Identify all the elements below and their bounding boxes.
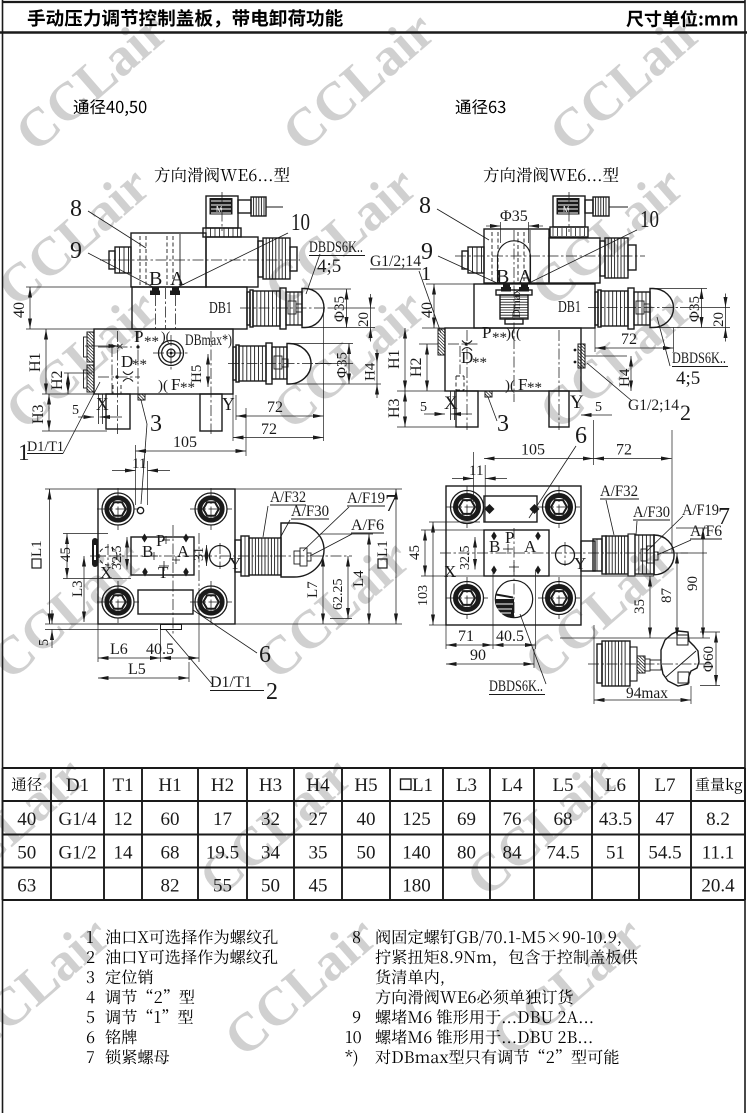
svg-text:)(: )( — [505, 378, 515, 394]
svg-text:DB1: DB1 — [209, 298, 232, 317]
svg-text:40: 40 — [357, 809, 376, 830]
svg-text:A: A — [177, 542, 190, 561]
svg-text:72: 72 — [616, 442, 632, 459]
svg-text:G1/4: G1/4 — [59, 809, 98, 830]
svg-text:G1/2;14: G1/2;14 — [370, 253, 421, 270]
svg-text:P: P — [134, 327, 143, 346]
svg-text:H1: H1 — [27, 352, 44, 372]
svg-text:14: 14 — [114, 843, 134, 864]
svg-text:B: B — [142, 542, 153, 561]
svg-text:H1: H1 — [158, 775, 181, 796]
svg-text:34: 34 — [261, 843, 281, 864]
svg-text:2: 2 — [266, 679, 278, 705]
svg-text:32.5: 32.5 — [110, 546, 125, 571]
svg-text:X: X — [444, 562, 456, 581]
svg-text:L5: L5 — [128, 661, 146, 678]
svg-text:D1: D1 — [66, 775, 89, 796]
svg-text:5: 5 — [72, 403, 79, 418]
svg-text:9: 9 — [421, 239, 433, 265]
svg-text:CCLair: CCLair — [480, 905, 655, 1068]
svg-text:3: 3 — [497, 411, 509, 437]
svg-text:105: 105 — [521, 442, 545, 459]
svg-text:A/F30: A/F30 — [291, 503, 329, 520]
svg-text:72: 72 — [621, 331, 637, 348]
svg-text:63: 63 — [17, 876, 36, 897]
svg-text:Dmax: Dmax — [509, 289, 523, 318]
svg-text:L4: L4 — [501, 775, 523, 796]
svg-text:Φ35: Φ35 — [335, 352, 351, 378]
svg-text:Φ60: Φ60 — [701, 646, 717, 672]
svg-text:72: 72 — [261, 421, 277, 438]
svg-text:T1: T1 — [112, 775, 133, 796]
svg-text:6: 6 — [259, 642, 271, 668]
svg-text:H5: H5 — [189, 365, 205, 383]
svg-text:5: 5 — [37, 639, 52, 646]
svg-text:L4: L4 — [351, 570, 367, 587]
svg-text:)((: )(( — [506, 326, 521, 342]
svg-text:Φ35: Φ35 — [332, 296, 348, 322]
svg-text:12: 12 — [114, 809, 133, 830]
svg-text:CCLair: CCLair — [213, 905, 388, 1068]
svg-text:20: 20 — [711, 312, 727, 327]
svg-text:**: ** — [527, 380, 542, 396]
svg-text:3: 3 — [150, 411, 162, 437]
svg-text:L1: L1 — [412, 775, 433, 796]
svg-text:69: 69 — [457, 809, 476, 830]
svg-text:80: 80 — [457, 843, 476, 864]
svg-text:**: ** — [144, 334, 159, 350]
svg-text:45: 45 — [407, 545, 423, 560]
svg-text:L6: L6 — [605, 775, 626, 796]
svg-text:76: 76 — [503, 809, 522, 830]
svg-text:50: 50 — [357, 843, 376, 864]
svg-text:DBmax*): DBmax*) — [185, 332, 232, 349]
svg-text:125: 125 — [402, 809, 431, 830]
svg-text:L7: L7 — [305, 581, 321, 598]
svg-text:8.2: 8.2 — [706, 809, 730, 830]
svg-text:8: 8 — [70, 196, 82, 222]
svg-text:103: 103 — [416, 585, 431, 606]
svg-text:A/F6: A/F6 — [690, 523, 722, 540]
svg-text:32: 32 — [261, 809, 280, 830]
svg-text:19.5: 19.5 — [206, 843, 239, 864]
svg-text:L3: L3 — [70, 580, 86, 597]
svg-text:4;5: 4;5 — [317, 256, 341, 277]
svg-text:**: ** — [132, 357, 147, 373]
svg-text:72: 72 — [267, 399, 283, 416]
svg-text:G1/2: G1/2 — [59, 843, 97, 864]
svg-text:20: 20 — [356, 312, 372, 327]
svg-text:54.5: 54.5 — [648, 843, 681, 864]
svg-text:32.5: 32.5 — [458, 546, 473, 571]
svg-text:2: 2 — [680, 400, 691, 425]
svg-text:H2: H2 — [211, 775, 234, 796]
svg-text:L5: L5 — [552, 775, 573, 796]
svg-text:40: 40 — [419, 302, 436, 318]
svg-text:50: 50 — [17, 843, 36, 864]
svg-text:17: 17 — [213, 809, 232, 830]
svg-text:11.1: 11.1 — [702, 843, 735, 864]
svg-text:55: 55 — [213, 876, 232, 897]
svg-text:L1: L1 — [375, 540, 391, 557]
svg-text:20.4: 20.4 — [701, 876, 735, 897]
svg-text:CCLair: CCLair — [271, 0, 446, 163]
svg-text:H2: H2 — [49, 370, 66, 390]
svg-text:50: 50 — [261, 876, 280, 897]
svg-text:H1: H1 — [386, 349, 403, 369]
svg-text:L1: L1 — [29, 540, 45, 557]
svg-text:A/F19: A/F19 — [347, 490, 385, 507]
svg-text:31: 31 — [192, 547, 207, 561]
svg-text:D1/T1: D1/T1 — [210, 674, 252, 691]
svg-text:H2: H2 — [408, 357, 425, 377]
svg-text:35: 35 — [632, 599, 648, 614]
svg-text:A/F6: A/F6 — [351, 517, 384, 534]
svg-text:DBDS6K..: DBDS6K.. — [489, 678, 543, 695]
svg-text:40: 40 — [11, 302, 28, 318]
svg-text:DB1: DB1 — [558, 297, 581, 316]
svg-text:82: 82 — [161, 876, 180, 897]
svg-text:CCLair: CCLair — [0, 905, 121, 1068]
svg-text:40.5: 40.5 — [496, 628, 524, 645]
svg-text:H5: H5 — [354, 775, 377, 796]
svg-text:87: 87 — [659, 588, 675, 604]
svg-text:Φ35: Φ35 — [687, 296, 703, 322]
svg-text:**: ** — [472, 355, 487, 371]
svg-text:68: 68 — [161, 843, 180, 864]
svg-text:45: 45 — [309, 876, 328, 897]
svg-text:H3: H3 — [259, 775, 282, 796]
svg-text:L6: L6 — [110, 641, 128, 658]
svg-text:DBDS6K..: DBDS6K.. — [309, 239, 363, 256]
svg-text:40.5: 40.5 — [146, 641, 174, 658]
svg-text:10: 10 — [640, 207, 659, 233]
svg-text:35: 35 — [309, 843, 328, 864]
svg-text:1: 1 — [18, 440, 30, 465]
svg-text:H4: H4 — [363, 362, 379, 381]
svg-text:H4: H4 — [617, 368, 633, 387]
svg-text:6: 6 — [575, 423, 587, 449]
svg-text:43.5: 43.5 — [599, 809, 632, 830]
svg-text:62.25: 62.25 — [331, 579, 346, 611]
svg-text:11: 11 — [132, 456, 146, 472]
svg-text:L7: L7 — [654, 775, 675, 796]
svg-text:4;5: 4;5 — [676, 368, 700, 389]
svg-text:A/F19: A/F19 — [682, 502, 719, 519]
svg-text:51: 51 — [606, 843, 625, 864]
svg-text:D1/T1: D1/T1 — [27, 439, 64, 455]
svg-text:71: 71 — [458, 628, 474, 645]
svg-text:G1/2;14: G1/2;14 — [628, 397, 679, 414]
svg-text:47: 47 — [656, 809, 675, 830]
svg-text:45: 45 — [58, 547, 74, 562]
svg-text:105: 105 — [173, 434, 197, 451]
svg-text:10: 10 — [291, 210, 310, 236]
svg-text:68: 68 — [554, 809, 573, 830]
svg-text:5: 5 — [595, 400, 602, 415]
svg-text:**: ** — [492, 330, 507, 346]
svg-text:A/F32: A/F32 — [600, 483, 638, 500]
svg-text:84: 84 — [503, 843, 523, 864]
svg-text:5: 5 — [420, 400, 427, 415]
svg-text:11: 11 — [469, 463, 483, 479]
svg-text:X: X — [444, 393, 458, 414]
svg-text:)(: )( — [158, 378, 168, 394]
svg-text:Y: Y — [574, 554, 586, 573]
svg-text:90: 90 — [470, 647, 486, 664]
svg-text:P: P — [505, 528, 514, 547]
svg-text:27: 27 — [309, 809, 328, 830]
svg-text:H3: H3 — [30, 404, 47, 424]
svg-text:)(: )( — [161, 330, 171, 345]
svg-text:Φ35: Φ35 — [500, 208, 528, 225]
svg-text:DBDS6K..: DBDS6K.. — [672, 350, 726, 367]
svg-text:180: 180 — [402, 876, 431, 897]
svg-text:60: 60 — [161, 809, 180, 830]
svg-text:P: P — [482, 323, 491, 342]
svg-text:H4: H4 — [306, 775, 330, 796]
svg-text:90: 90 — [685, 576, 701, 591]
svg-text:L3: L3 — [456, 775, 477, 796]
svg-text:9: 9 — [70, 238, 82, 264]
svg-text:40: 40 — [17, 809, 36, 830]
svg-text:94max: 94max — [626, 685, 668, 702]
svg-text:74.5: 74.5 — [546, 843, 579, 864]
svg-text:8: 8 — [419, 193, 431, 219]
svg-text:A/F30: A/F30 — [633, 504, 670, 521]
svg-text:H3: H3 — [386, 398, 403, 418]
svg-text:140: 140 — [402, 843, 431, 864]
svg-text:P: P — [156, 531, 165, 550]
svg-text:Y: Y — [570, 392, 584, 413]
